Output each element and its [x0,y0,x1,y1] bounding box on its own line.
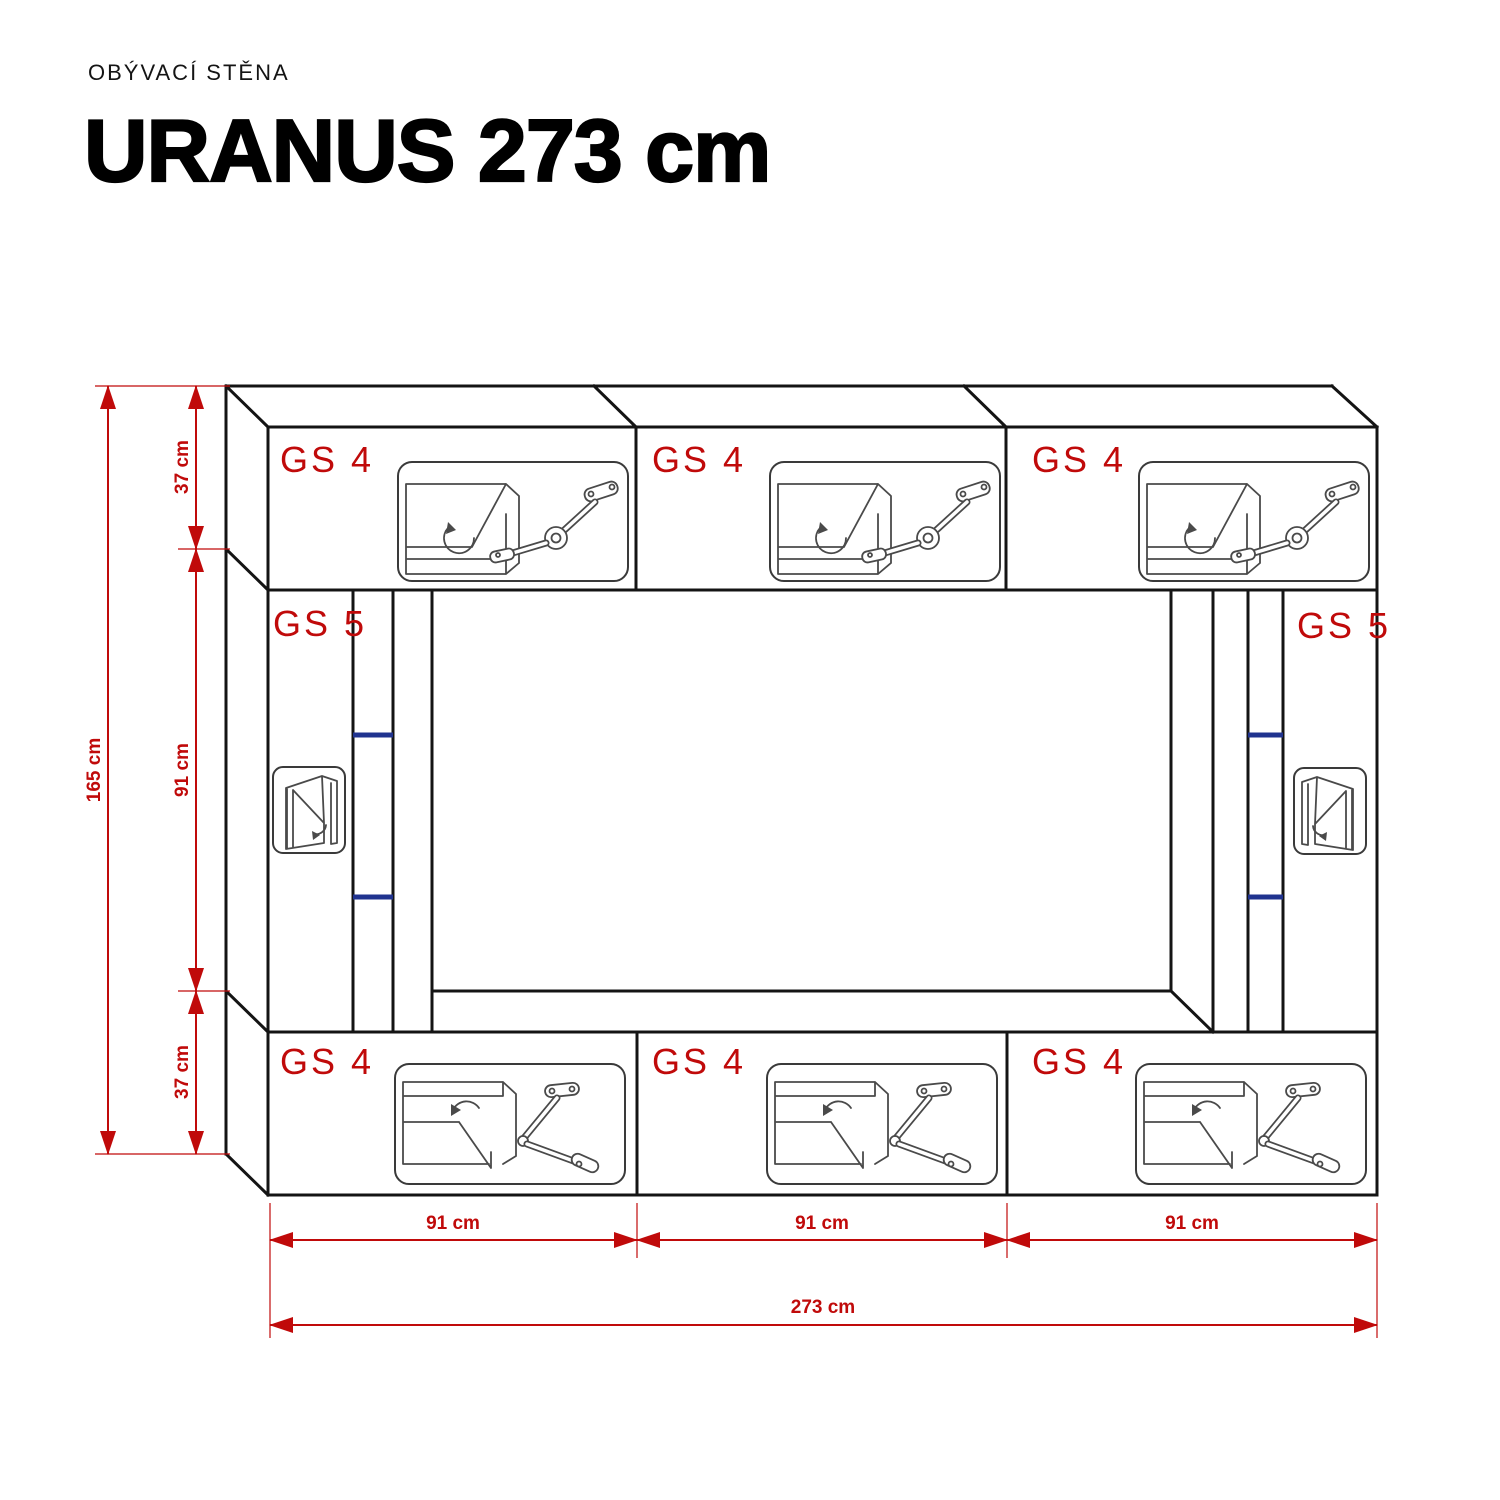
hinged-door-icon [273,767,345,853]
cabinet-label-bottom-1: GS 4 [280,1041,374,1082]
cabinet-label-middle-left: GS 5 [273,603,367,644]
section-width-label: 91 cm [1165,1213,1219,1234]
dimension-labels: 165 cm 37 cm 91 cm 37 cm 91 cm 91 cm 91 … [84,440,1219,1318]
cabinet-label-top-3: GS 4 [1032,439,1126,480]
page: OBÝVACÍ STĚNA URANUS 273 cm [0,0,1500,1500]
flap-up-door-mechanism-icon [1139,462,1369,581]
top-section-height-label: 37 cm [172,440,193,494]
total-width-label: 273 cm [791,1297,855,1318]
flap-up-door-mechanism-icon [770,462,1000,581]
cabinet-label-top-2: GS 4 [652,439,746,480]
section-width-label: 91 cm [795,1213,849,1234]
section-width-label: 91 cm [426,1213,480,1234]
middle-section-height-label: 91 cm [172,743,193,797]
mechanism-icons [273,462,1369,1184]
cabinet-label-bottom-3: GS 4 [1032,1041,1126,1082]
flap-down-door-mechanism-icon [395,1064,625,1184]
shelf-accent-lines [353,735,1283,897]
bottom-section-height-label: 37 cm [172,1045,193,1099]
wall-unit-diagram: 165 cm 37 cm 91 cm 37 cm 91 cm 91 cm 91 … [0,0,1500,1500]
cabinet-label-middle-right: GS 5 [1297,605,1391,646]
cabinet-label-top-1: GS 4 [280,439,374,480]
hinged-door-icon-mirrored [1294,768,1366,854]
flap-down-door-mechanism-icon [1136,1064,1366,1184]
total-height-label: 165 cm [84,738,105,802]
flap-up-door-mechanism-icon [398,462,628,581]
cabinet-label-bottom-2: GS 4 [652,1041,746,1082]
flap-down-door-mechanism-icon [767,1064,997,1184]
